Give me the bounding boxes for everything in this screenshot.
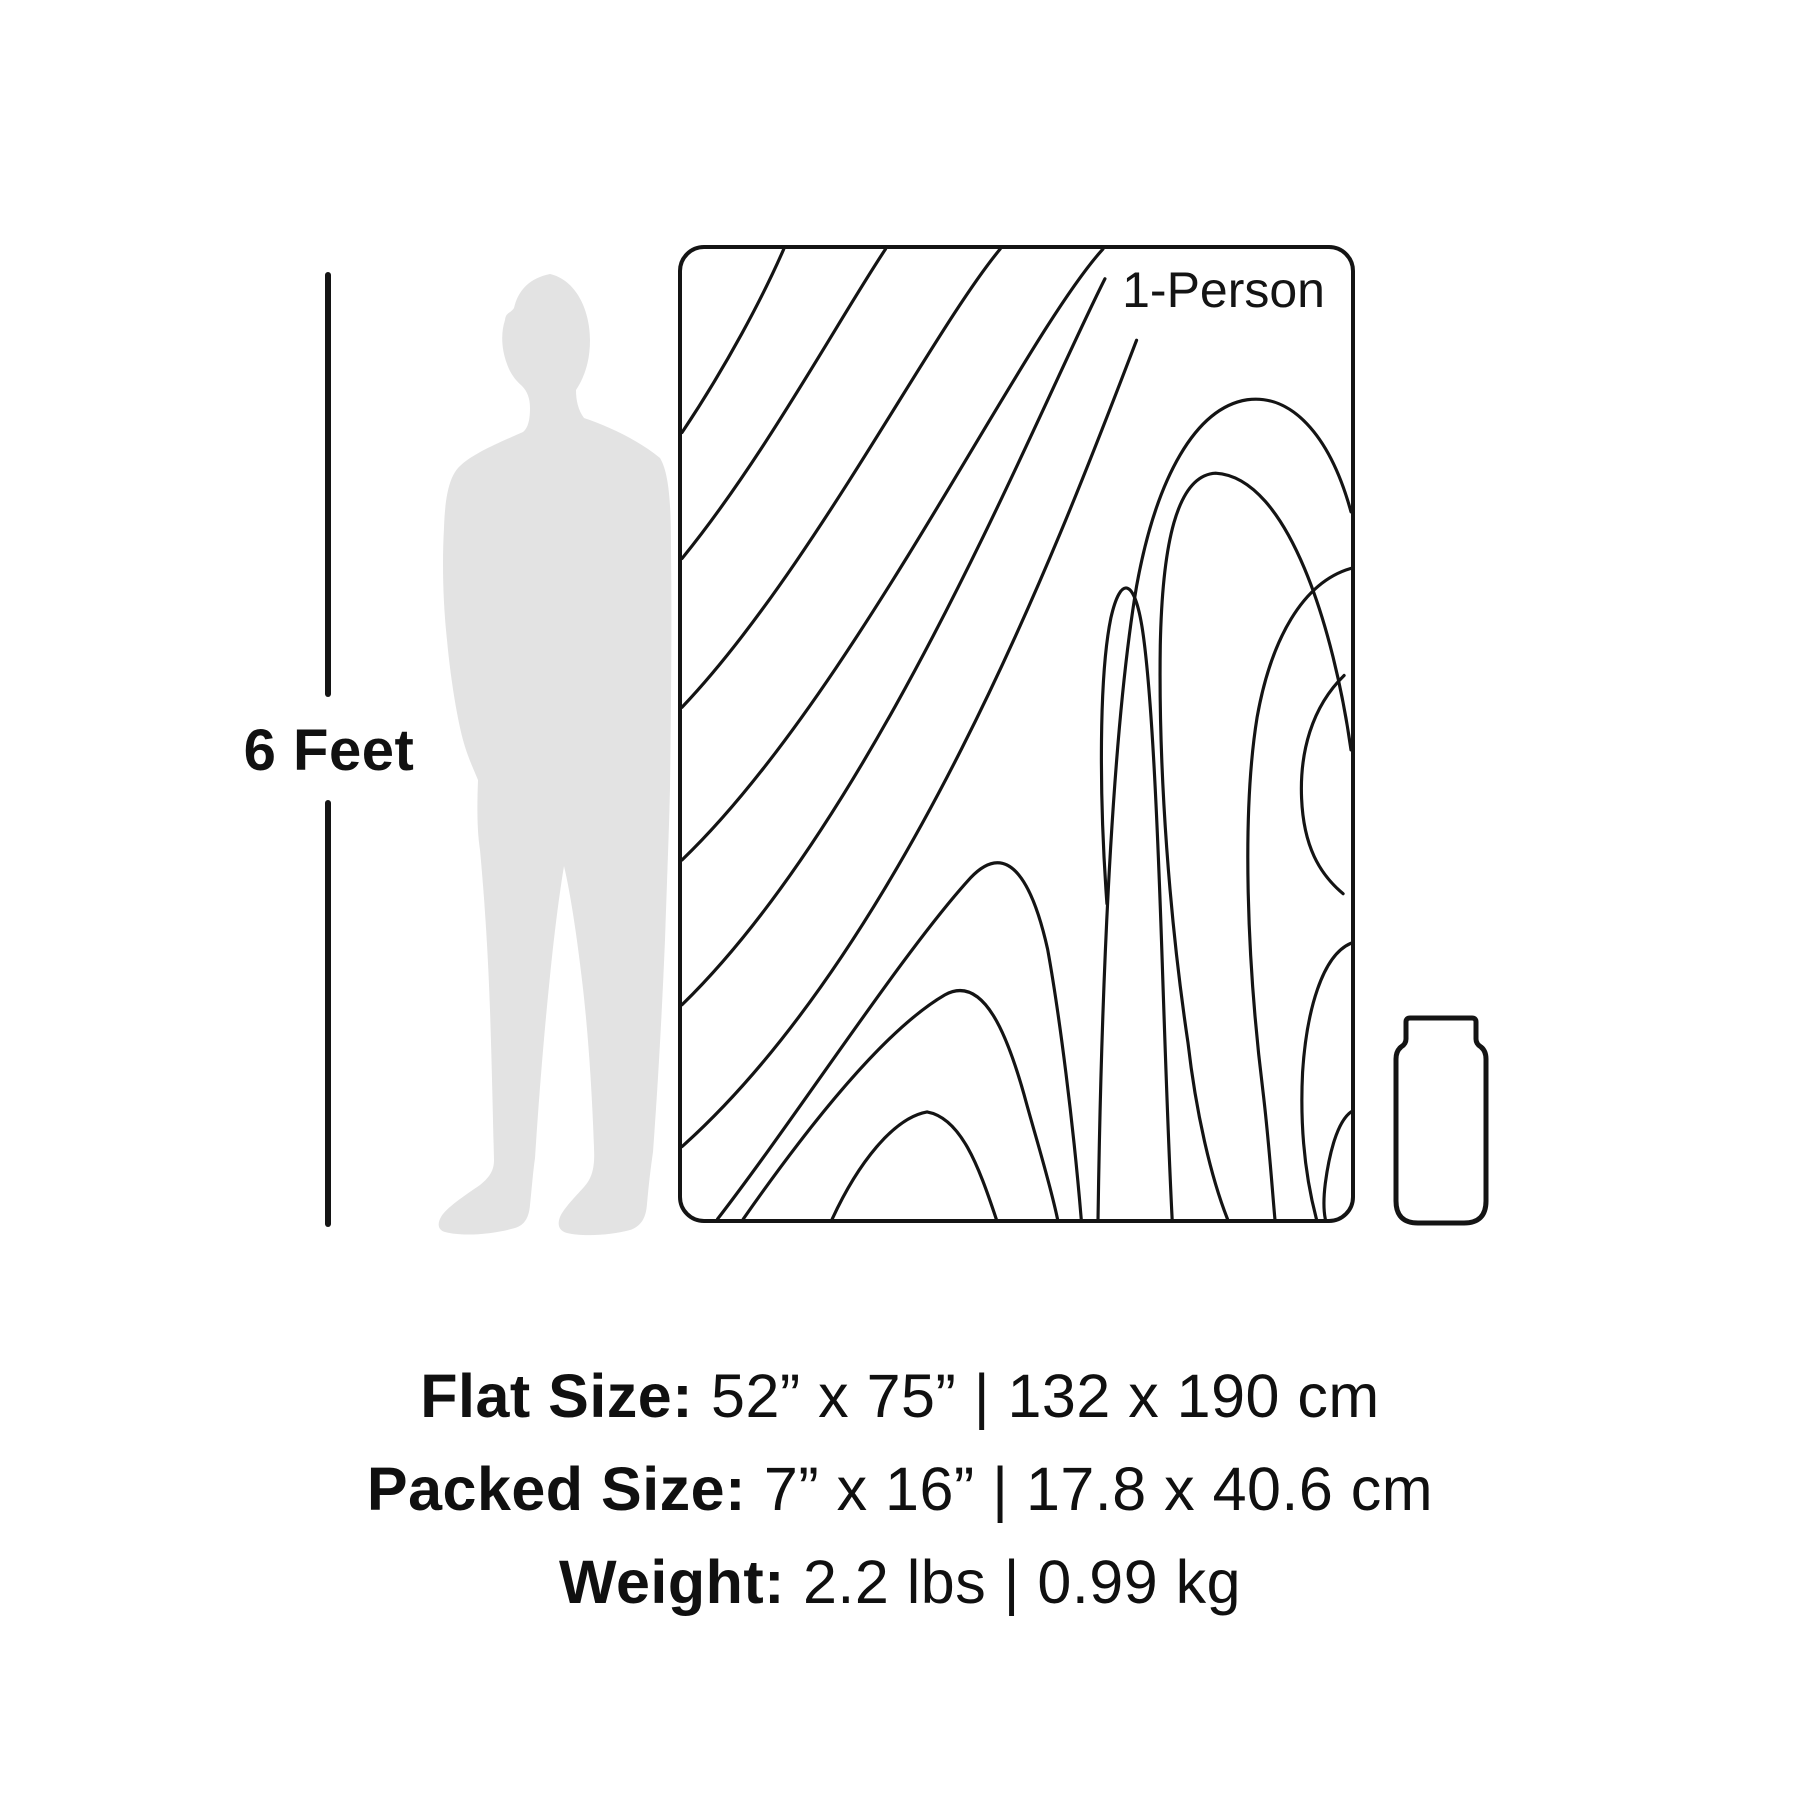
packed-size-label: Packed Size: (367, 1443, 746, 1536)
scale-line-top (325, 272, 331, 697)
weight-value: 2.2 lbs | 0.99 kg (803, 1536, 1241, 1629)
packed-sack-icon (1392, 1013, 1490, 1229)
spec-row-weight: Weight: 2.2 lbs | 0.99 kg (559, 1536, 1241, 1629)
topo-pattern (682, 249, 1351, 1219)
scale-line-bottom (325, 800, 331, 1227)
blanket-size-label: 1-Person (1122, 261, 1325, 319)
size-infographic: { "scale": { "label": "6 Feet" }, "blank… (0, 0, 1800, 1800)
spec-row-packed-size: Packed Size: 7” x 16” | 17.8 x 40.6 cm (367, 1443, 1433, 1536)
weight-label: Weight: (559, 1536, 785, 1629)
specs-list: Flat Size: 52” x 75” | 132 x 190 cm Pack… (0, 1350, 1800, 1629)
spec-row-flat-size: Flat Size: 52” x 75” | 132 x 190 cm (420, 1350, 1379, 1443)
flat-size-label: Flat Size: (420, 1350, 693, 1443)
packed-size-value: 7” x 16” | 17.8 x 40.6 cm (764, 1443, 1433, 1536)
flat-size-value: 52” x 75” | 132 x 190 cm (711, 1350, 1380, 1443)
blanket-diagram: 1-Person (678, 245, 1355, 1223)
person-silhouette-icon (432, 268, 692, 1238)
